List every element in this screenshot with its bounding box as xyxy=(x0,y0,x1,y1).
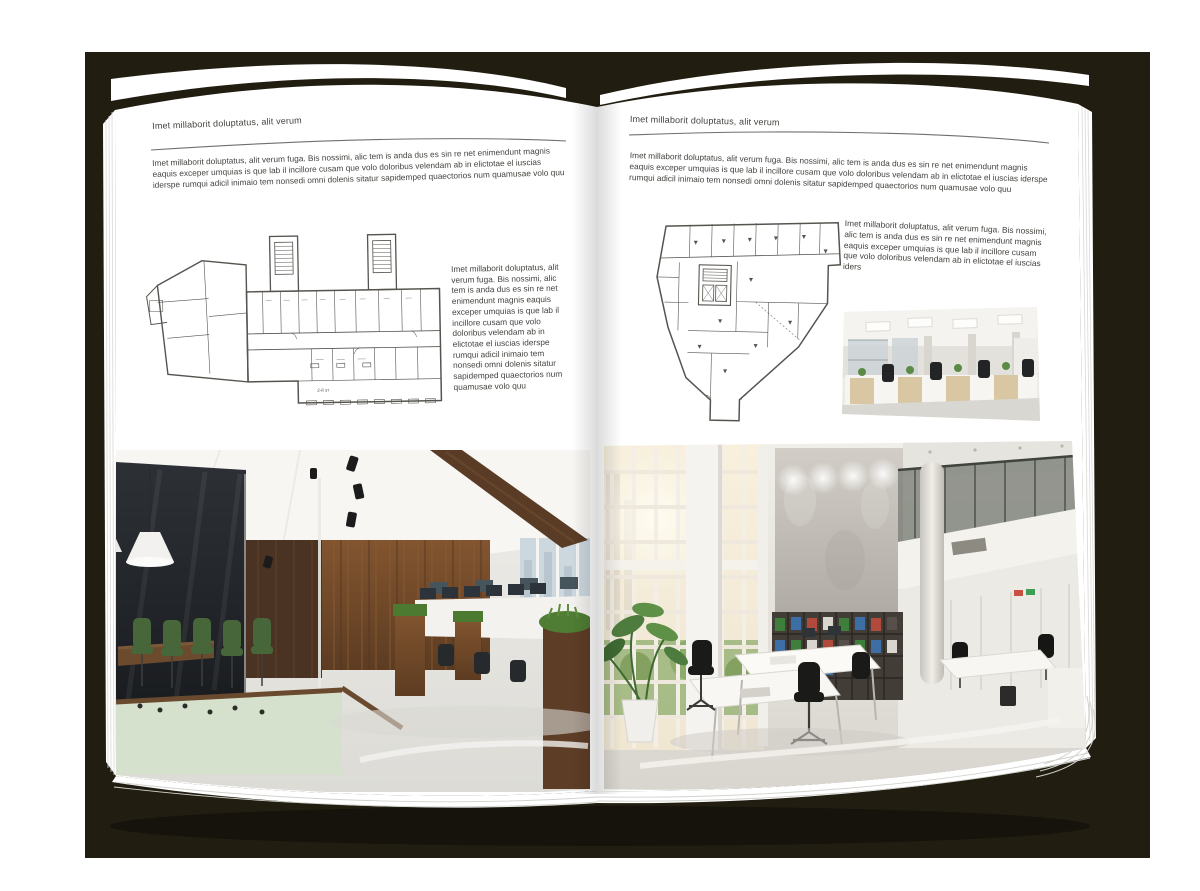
magazine-mockup-scene: 2-й эт xyxy=(0,0,1200,891)
book-shadow xyxy=(110,806,1090,846)
photo-office-right xyxy=(583,436,1088,794)
photo-office-left xyxy=(88,450,610,792)
spine-shadow-left xyxy=(572,104,597,794)
left-page-side-text: Imet millaborit doluptatus, alit verum f… xyxy=(451,262,572,393)
photo-office-small xyxy=(840,305,1042,423)
floorplan-left-floor-label: 2-й эт xyxy=(317,387,329,393)
right-page-side-text: Imet millaborit doluptatus, alit verum f… xyxy=(843,218,1049,280)
spine-shadow-right xyxy=(597,104,622,794)
open-magazine: 2-й эт xyxy=(0,0,1200,891)
